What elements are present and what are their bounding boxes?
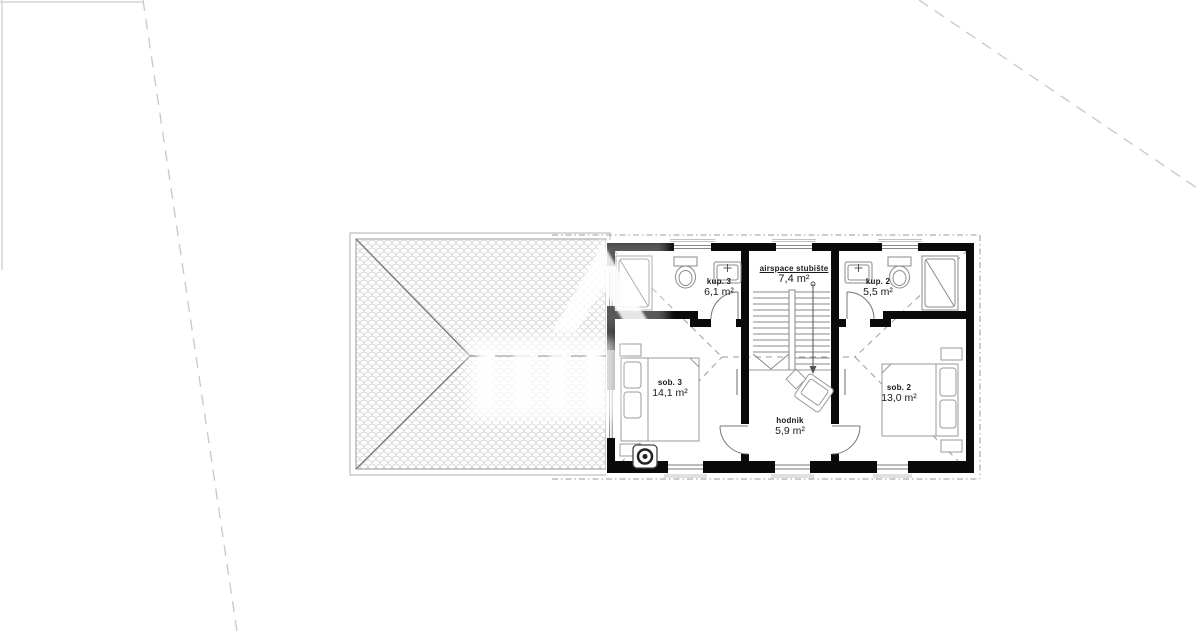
window [771, 461, 814, 477]
window [772, 240, 816, 252]
toilet-icon [674, 257, 697, 288]
toilet-icon [888, 257, 911, 288]
bedroom-right-furniture [882, 348, 962, 452]
window [607, 266, 615, 306]
roof-hatch [356, 239, 606, 469]
window [873, 461, 912, 477]
shower-icon [616, 256, 652, 310]
sink-icon [714, 262, 741, 283]
shower-icon [922, 256, 958, 310]
floor-plan-drawing [0, 0, 1200, 638]
nightstand [941, 348, 962, 360]
window [670, 240, 715, 252]
stove-icon [633, 445, 657, 468]
window [607, 390, 615, 438]
nightstand [941, 440, 962, 452]
floor-plan-canvas: kup. 3 6,1 m² airspace stubište 7,4 m² k… [0, 0, 1200, 638]
nightstand [620, 344, 641, 356]
bed-icon [621, 358, 699, 441]
sink-icon [845, 262, 872, 283]
sheet-border [0, 0, 143, 270]
roof-plan [350, 233, 610, 475]
window [664, 461, 707, 477]
window [878, 240, 922, 252]
bed-icon [882, 364, 958, 436]
